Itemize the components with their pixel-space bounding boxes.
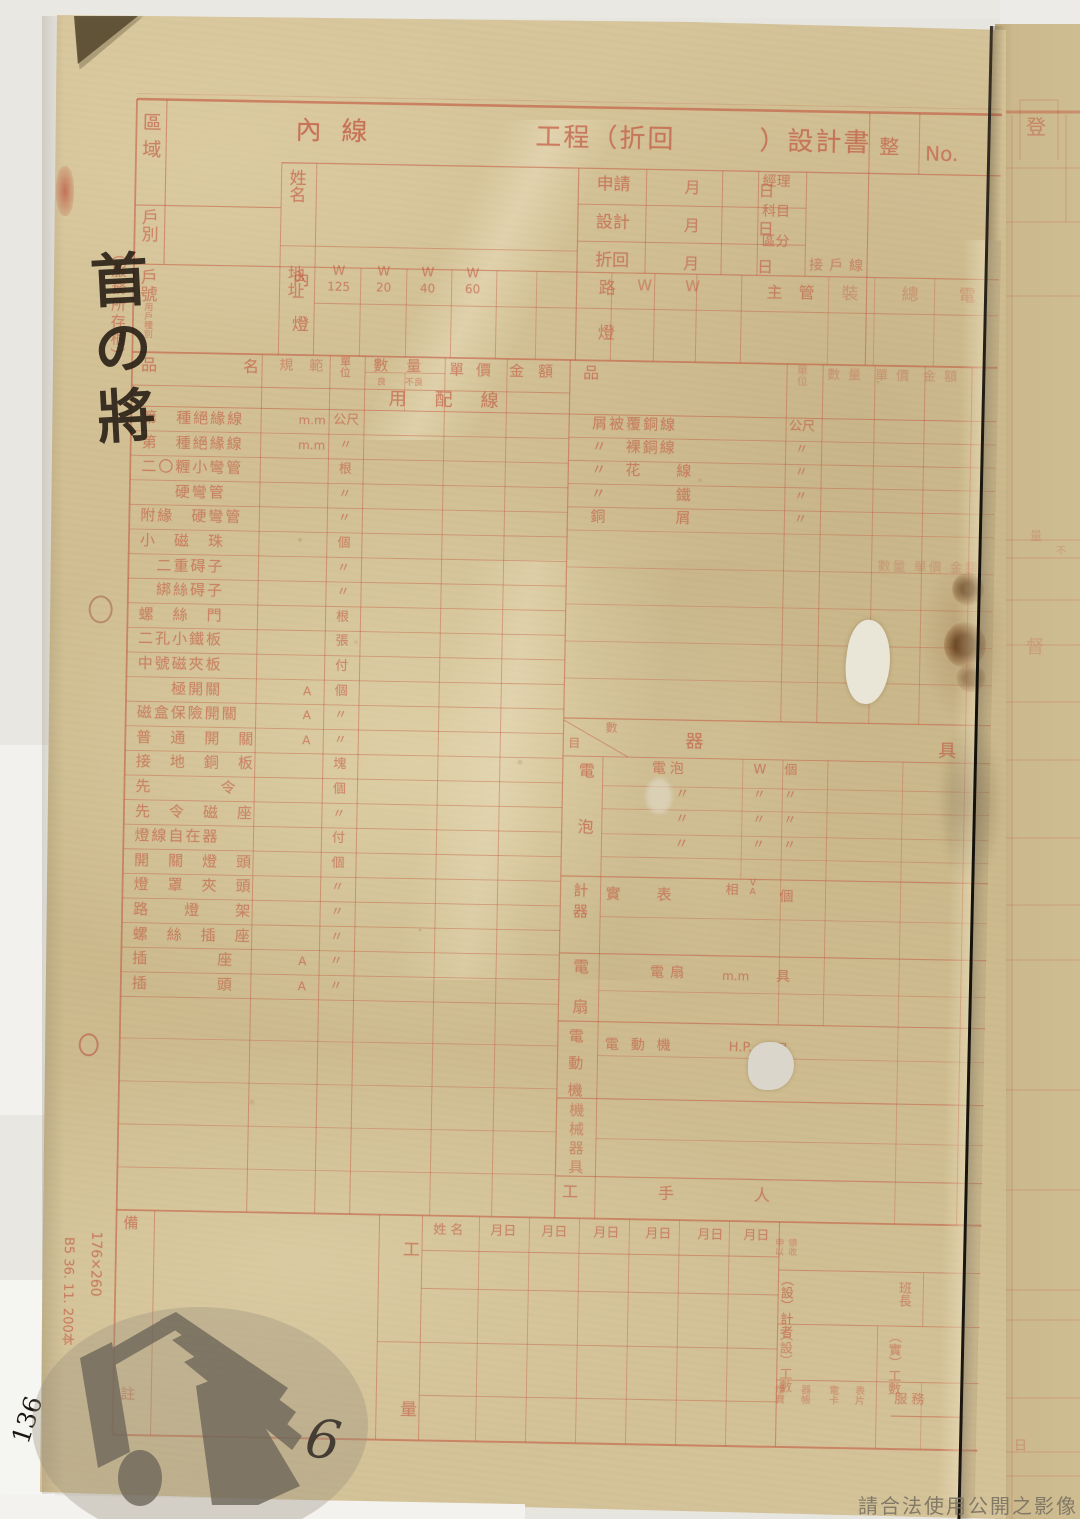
meter-row-phase: 相 bbox=[725, 884, 738, 899]
scrap-row-name: 〃 裸銅線 bbox=[592, 439, 677, 457]
material-row-name: 中號磁夾板 bbox=[138, 655, 223, 673]
faint-header-char: 裝 bbox=[841, 285, 858, 304]
material-row-name: 極開關 bbox=[137, 680, 222, 698]
scrap-row-unit: 〃 bbox=[795, 467, 808, 482]
page2-faint-char: 登 bbox=[1026, 116, 1046, 138]
scrap-row-name: 〃 花 線 bbox=[591, 462, 693, 481]
material-row-unit: 〃 bbox=[338, 512, 351, 527]
material-row-name: 附緣 硬彎管 bbox=[140, 508, 242, 527]
serial-zheng-label: 整 bbox=[879, 136, 899, 159]
bulb-row-watt: 〃 bbox=[752, 838, 765, 853]
material-row-name: 螺 絲 插 座 bbox=[133, 926, 252, 945]
material-row-name: 二孔小鐵板 bbox=[138, 631, 223, 649]
watt-col-value: 125 bbox=[327, 281, 350, 295]
label-supervisor: 主 管 bbox=[766, 284, 814, 303]
print-spec-label: B5 36. 11. 200本 bbox=[59, 1237, 76, 1346]
date-row-month: 月 bbox=[684, 217, 700, 235]
material-row-spec: A bbox=[298, 955, 306, 969]
grid-line bbox=[117, 1167, 555, 1175]
material-row-name: 小 磁 珠 bbox=[140, 532, 225, 550]
material-row-unit: 〃 bbox=[330, 906, 343, 921]
work-label-top: 工 bbox=[403, 1241, 420, 1260]
crew-col-header: 月日 bbox=[541, 1226, 567, 1241]
material-row-name: 普 通 開 關 bbox=[136, 729, 255, 748]
ledger-label: 器帳 bbox=[798, 1384, 810, 1404]
date-row-day: 日 bbox=[758, 182, 774, 200]
watt-col-value: 60 bbox=[465, 283, 481, 297]
fan-row-spec: m.m bbox=[722, 970, 749, 984]
grid-line bbox=[525, 1217, 529, 1442]
label-indoor-lamp: 內燈 bbox=[287, 270, 308, 360]
header-qty-bad: 不良 bbox=[405, 378, 423, 388]
grid-line bbox=[601, 857, 988, 864]
material-row-unit: 〃 bbox=[334, 734, 347, 749]
material-row-unit: 〃 bbox=[337, 561, 350, 576]
section-wiring-materials: 用配線 bbox=[388, 390, 526, 413]
bulb-row-unit: 〃 bbox=[783, 839, 796, 854]
watt-col-value: 20 bbox=[376, 281, 392, 295]
material-row-unit: 〃 bbox=[339, 438, 352, 453]
remarks-top: 備 bbox=[123, 1215, 138, 1232]
torn-white-patch-3 bbox=[646, 778, 672, 814]
scrap-row-name: 〃 鐵 bbox=[591, 485, 693, 504]
meter-row-unit: 個 bbox=[779, 890, 793, 906]
grid-line bbox=[725, 1221, 729, 1446]
material-row-unit: 個 bbox=[335, 684, 348, 699]
header-qty-good: 良 bbox=[377, 377, 386, 387]
actual-work-label: （實）工數 bbox=[884, 1330, 900, 1395]
bulb-row-watt: 〃 bbox=[752, 813, 765, 828]
material-row-name: 插 頭 bbox=[132, 975, 234, 994]
page2-faint-char: 不 bbox=[1056, 546, 1066, 557]
watt-col-unit: W bbox=[466, 267, 479, 282]
scrap-row-unit: 〃 bbox=[795, 443, 808, 458]
material-row-unit: 個 bbox=[333, 783, 346, 798]
material-row-name: 二重碍子 bbox=[139, 557, 224, 575]
bulb-row-unit: 個 bbox=[784, 764, 797, 779]
material-row-spec: A bbox=[303, 709, 311, 723]
date-row-month: 月 bbox=[684, 179, 700, 197]
corner-tr: 數 bbox=[605, 722, 617, 736]
grid-line bbox=[567, 530, 994, 538]
ledger-label: 電卡 bbox=[826, 1385, 838, 1405]
section-fan: 電扇 bbox=[569, 958, 588, 1038]
material-row-unit: 付 bbox=[335, 660, 348, 675]
grid-line bbox=[596, 1139, 983, 1146]
material-row-name: 綁絲碍子 bbox=[139, 581, 224, 599]
bulb-row-name: 〃 bbox=[675, 812, 693, 828]
page2-faint-char: 量 bbox=[1030, 530, 1042, 543]
material-row-name: 硬彎管 bbox=[141, 483, 226, 501]
material-row-unit: 張 bbox=[335, 635, 348, 650]
material-row-name: 磁盒保險開關 bbox=[137, 704, 239, 723]
header-amount: 金額 bbox=[509, 363, 567, 381]
date-row-day: 日 bbox=[758, 220, 774, 238]
grid-line bbox=[475, 1216, 479, 1441]
grid-line bbox=[675, 1220, 679, 1445]
form-title-left: 內線 bbox=[295, 117, 388, 148]
material-row-unit: 〃 bbox=[338, 488, 351, 503]
crew-col-header: 月日 bbox=[593, 1227, 619, 1242]
material-row-name: 燈 罩 夾 頭 bbox=[133, 876, 252, 895]
foreman-label: 班長 bbox=[895, 1281, 910, 1307]
material-row-name: 先 令 磁 座 bbox=[135, 803, 254, 822]
header-qty: 數量 bbox=[373, 357, 439, 375]
section-motor: 電動機 bbox=[566, 1028, 584, 1109]
crew-col-header: 月日 bbox=[490, 1225, 516, 1240]
section-bulb: 電泡 bbox=[574, 762, 594, 874]
handwritten-margin-note: 首の將 bbox=[71, 248, 166, 456]
material-row-spec: A bbox=[303, 685, 311, 699]
remarks-bottom: 註 bbox=[120, 1386, 135, 1403]
red-ink-blob bbox=[56, 166, 74, 216]
receipt-label-2: 領收 bbox=[786, 1238, 796, 1256]
scrap-row-unit: 〃 bbox=[794, 490, 807, 505]
grid-line bbox=[118, 1124, 556, 1132]
date-row-label: 折回 bbox=[595, 251, 629, 271]
material-row-name: 先 令 bbox=[135, 778, 237, 797]
street-watt-col: W bbox=[685, 278, 700, 295]
meter-row-name: 實 表 bbox=[605, 886, 673, 904]
form-title-right: 工程（折回 ）設計書 bbox=[535, 123, 871, 158]
header-unit: 單位 bbox=[338, 356, 351, 378]
corner-bl: 目 bbox=[568, 737, 580, 751]
watt-col-value: 40 bbox=[420, 282, 436, 296]
crew-col-header: 月日 bbox=[697, 1228, 723, 1243]
material-row-spec: A bbox=[302, 734, 310, 748]
material-row-name: 燈線自在器 bbox=[134, 827, 219, 845]
material-row-name: 開 關 燈 頭 bbox=[134, 852, 253, 871]
scrap-row-unit: 〃 bbox=[794, 513, 807, 528]
material-row-unit: 〃 bbox=[330, 930, 343, 945]
motor-row-name: 電動機 bbox=[605, 1038, 683, 1055]
label-subject: 科目 bbox=[762, 204, 790, 220]
bulb-row-watt: W bbox=[753, 763, 766, 778]
page2-faint-char: 督 bbox=[1026, 638, 1044, 658]
crew-col-header: 月日 bbox=[645, 1228, 671, 1243]
grid-line bbox=[121, 996, 559, 1004]
watt-col-unit: W bbox=[421, 266, 434, 281]
material-row-unit: 〃 bbox=[329, 979, 342, 994]
serial-no-label: No. bbox=[925, 142, 959, 165]
page2-faint-char: 日 bbox=[1014, 1440, 1027, 1455]
header-unit2: 單位 bbox=[795, 364, 808, 386]
grid-line bbox=[120, 1038, 558, 1046]
material-row-unit: 〃 bbox=[332, 807, 345, 822]
copyright-watermark-text: 請合法使用公開之影像 bbox=[858, 1490, 1078, 1519]
material-row-spec: A bbox=[298, 980, 306, 994]
crew-col-header: 月日 bbox=[743, 1229, 769, 1244]
header-price2: 單價 bbox=[875, 370, 917, 385]
ledger-label: 燈費 bbox=[772, 1384, 784, 1404]
material-row-name: 接 地 銅 板 bbox=[136, 753, 255, 772]
meter-row-va: V A bbox=[749, 879, 760, 897]
material-row-name: 二〇糎小彎管 bbox=[141, 458, 243, 477]
bulb-row-name: 〃 bbox=[674, 837, 692, 853]
grid-line bbox=[599, 991, 986, 998]
watt-col-unit: W bbox=[377, 265, 390, 280]
field-name: 姓名 bbox=[285, 169, 305, 203]
material-row-unit: 塊 bbox=[333, 758, 346, 773]
bulb-row-unit: 〃 bbox=[783, 814, 796, 829]
material-row-unit: 〃 bbox=[334, 709, 347, 724]
material-row-spec: m.m bbox=[298, 414, 325, 428]
equipment-title-1: 器 bbox=[685, 732, 703, 752]
material-row-name: 螺 絲 門 bbox=[138, 606, 223, 624]
section-machinery: 機械器具 bbox=[566, 1102, 584, 1178]
date-row-day: 日 bbox=[757, 258, 773, 276]
crew-col-header: 姓名 bbox=[433, 1224, 467, 1239]
bulb-row-name: 〃 bbox=[675, 787, 693, 803]
label-street-lamp: 路燈 bbox=[593, 278, 614, 368]
material-row-name: 路 燈 架 bbox=[133, 901, 252, 920]
watt-col-unit: W bbox=[332, 265, 345, 280]
grid-line bbox=[625, 1219, 629, 1444]
fan-row-name: 電扇 bbox=[650, 966, 690, 982]
header-item2: 品 bbox=[583, 364, 599, 382]
date-row-label: 申請 bbox=[596, 175, 630, 195]
material-row-unit: 個 bbox=[331, 856, 344, 871]
ledger-label: 表片 bbox=[852, 1385, 864, 1405]
material-row-unit: 〃 bbox=[336, 586, 349, 601]
header-spec: 規範 bbox=[279, 359, 339, 376]
material-row-unit: 根 bbox=[339, 463, 352, 478]
field-region: 區域 bbox=[139, 112, 161, 166]
scrap-row-name: 屑被覆銅線 bbox=[592, 415, 677, 433]
date-row-label: 設計 bbox=[596, 213, 630, 233]
header-name: 名 bbox=[243, 358, 259, 376]
grid-line bbox=[575, 1218, 579, 1443]
header-price: 單價 bbox=[449, 362, 503, 380]
material-row-unit: 公尺 bbox=[333, 414, 359, 429]
material-row-unit: 〃 bbox=[330, 955, 343, 970]
bulb-row-watt: 〃 bbox=[753, 788, 766, 803]
section-meter: 計器 bbox=[571, 882, 589, 924]
work-label-bottom: 量 bbox=[400, 1401, 417, 1420]
grid-line bbox=[119, 1081, 557, 1089]
bulb-row-name: 電泡 bbox=[652, 762, 688, 778]
material-row-name: 插 座 bbox=[132, 950, 234, 969]
faint-header-char: 總 bbox=[901, 286, 918, 305]
scrap-row-name: 銅 屑 bbox=[590, 508, 692, 527]
header-qty2: 數量 bbox=[827, 369, 869, 384]
header-amount2: 金額 bbox=[923, 370, 965, 385]
bulb-row-unit: 〃 bbox=[784, 789, 797, 804]
date-row-month: 月 bbox=[683, 255, 699, 273]
scanned-form-page: 內線 工程（折回 ）設計書 整 No. 區域 戶別 戶號 用戶種別 姓名 地址 … bbox=[0, 0, 1080, 1519]
fan-row-unit: 具 bbox=[776, 970, 790, 986]
material-row-unit: 個 bbox=[337, 537, 350, 552]
grid-line bbox=[600, 917, 987, 924]
scrap-row-unit: 公尺 bbox=[789, 420, 815, 435]
material-row-spec: m.m bbox=[298, 439, 325, 453]
field-household-type: 戶別 bbox=[137, 208, 157, 242]
label-service-line: 接戶線 bbox=[809, 258, 869, 275]
street-watt-col: W bbox=[637, 277, 652, 294]
printed-form: 內線 工程（折回 ）設計書 整 No. 區域 戶別 戶號 用戶種別 姓名 地址 … bbox=[0, 0, 1080, 1519]
material-row-unit: 付 bbox=[332, 832, 345, 847]
service-label: 服務 bbox=[894, 1393, 928, 1408]
material-row-unit: 〃 bbox=[331, 881, 344, 896]
print-size-label: 176×260 bbox=[86, 1231, 103, 1296]
material-row-unit: 根 bbox=[336, 611, 349, 626]
receipt-label-1: 申以 bbox=[773, 1238, 783, 1256]
